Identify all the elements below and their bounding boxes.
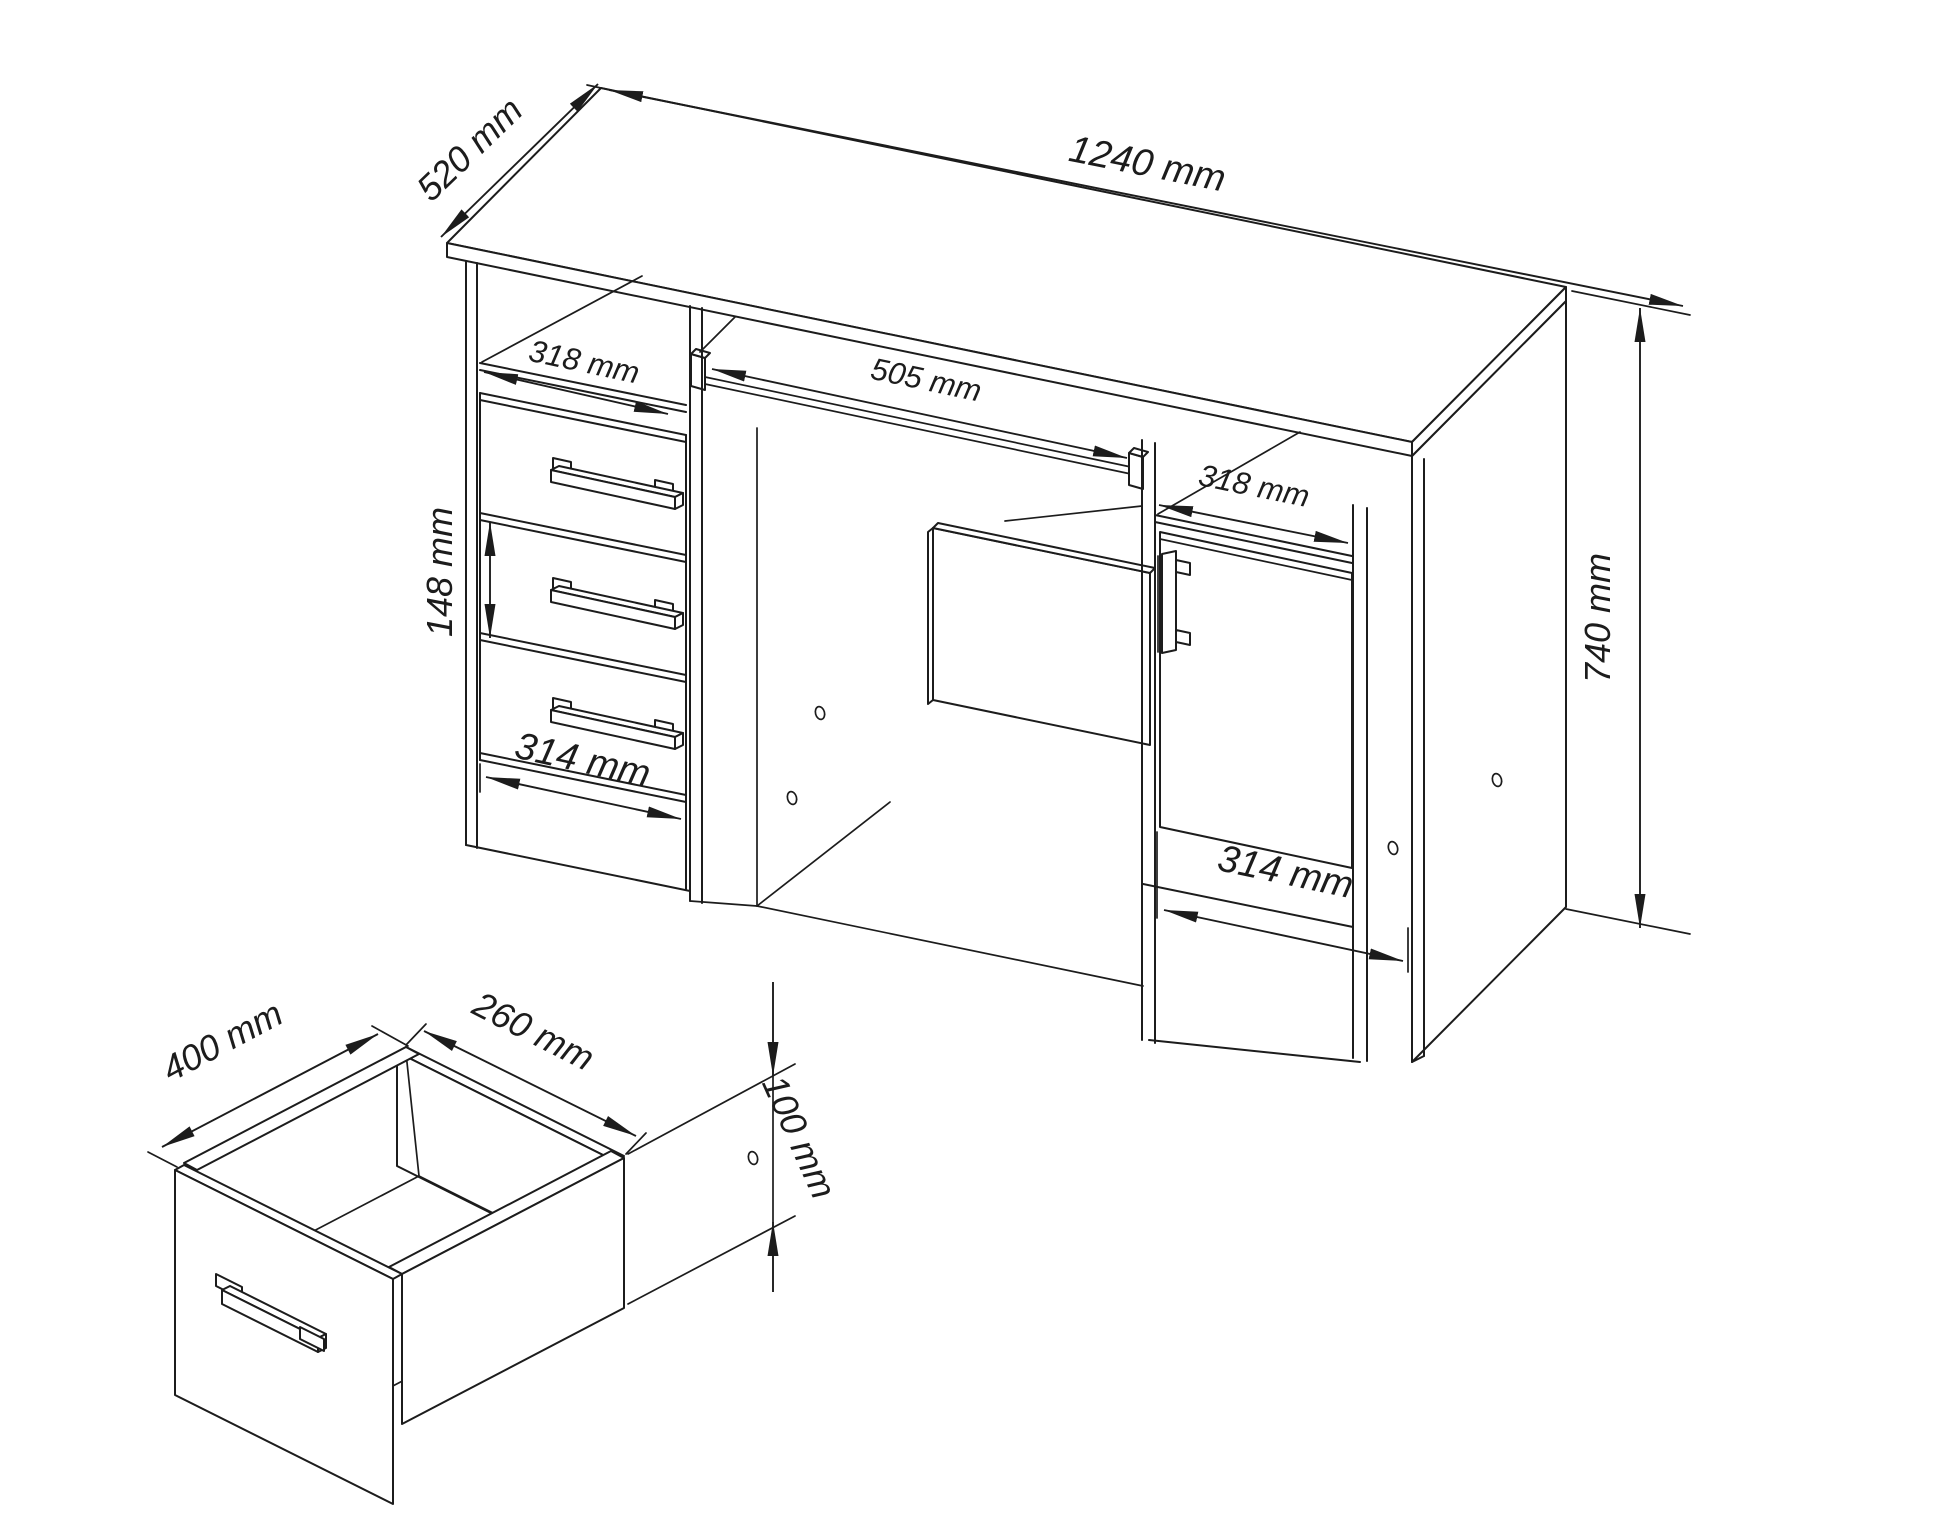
desk-drawing: 520 mm 1240 mm 740 mm 318 mm 505 mm 318 … bbox=[408, 84, 1690, 1062]
drawer-handle bbox=[551, 458, 683, 509]
dimension-right-shelf: 318 mm bbox=[1159, 457, 1348, 543]
drawer-handle bbox=[551, 578, 683, 629]
dim-label-desk-height: 740 mm bbox=[1577, 553, 1618, 683]
desktop bbox=[447, 88, 1566, 456]
drawer-detail-drawing: 400 mm 260 mm 100 mm bbox=[148, 982, 845, 1504]
dim-label-detail-depth: 400 mm bbox=[155, 992, 289, 1089]
screw-hole-marker bbox=[747, 1151, 759, 1166]
dimension-detail-height: 100 mm bbox=[628, 982, 845, 1304]
dim-label-detail-width: 260 mm bbox=[466, 983, 601, 1079]
dim-label-detail-height: 100 mm bbox=[754, 1069, 844, 1204]
dimension-height: 740 mm bbox=[1566, 291, 1690, 934]
desk-dimension-diagram: 520 mm 1240 mm 740 mm 318 mm 505 mm 318 … bbox=[0, 0, 1946, 1525]
right-pedestal bbox=[1142, 432, 1367, 1062]
dim-label-left-shelf: 318 mm bbox=[526, 333, 643, 391]
dimension-door-width: 314 mm bbox=[1157, 832, 1408, 972]
technical-drawing-page: 520 mm 1240 mm 740 mm 318 mm 505 mm 318 … bbox=[0, 0, 1946, 1525]
cabinet-door bbox=[1160, 532, 1352, 868]
center-bay-floor bbox=[690, 802, 1143, 986]
back-panel bbox=[928, 506, 1155, 745]
dim-label-drawer-pitch: 148 mm bbox=[419, 507, 460, 637]
dim-label-right-shelf: 318 mm bbox=[1196, 457, 1313, 514]
